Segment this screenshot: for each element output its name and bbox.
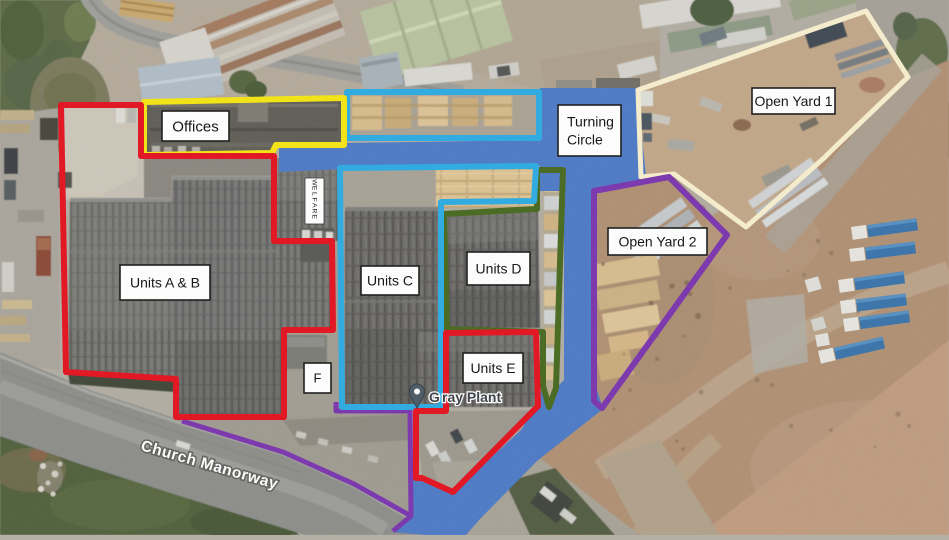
svg-text:L: L	[311, 192, 318, 196]
svg-text:Open Yard 2: Open Yard 2	[618, 234, 696, 250]
svg-text:ray Plant: ray Plant	[442, 389, 501, 405]
svg-text:Circle: Circle	[567, 132, 603, 148]
svg-text:Units C: Units C	[367, 273, 413, 289]
svg-text:E: E	[311, 214, 318, 219]
svg-text:F: F	[311, 198, 318, 202]
svg-text:F: F	[314, 371, 322, 386]
svg-text:Open Yard 1: Open Yard 1	[754, 93, 832, 109]
svg-text:R: R	[311, 209, 318, 214]
svg-text:Units E: Units E	[470, 360, 515, 376]
svg-text:A: A	[311, 203, 318, 208]
svg-text:Turning: Turning	[567, 114, 614, 130]
svg-text:G: G	[429, 389, 440, 405]
svg-text:Offices: Offices	[172, 118, 218, 135]
svg-text:E: E	[311, 186, 318, 191]
svg-text:Units D: Units D	[476, 261, 522, 277]
svg-text:Units A & B: Units A & B	[130, 275, 200, 291]
